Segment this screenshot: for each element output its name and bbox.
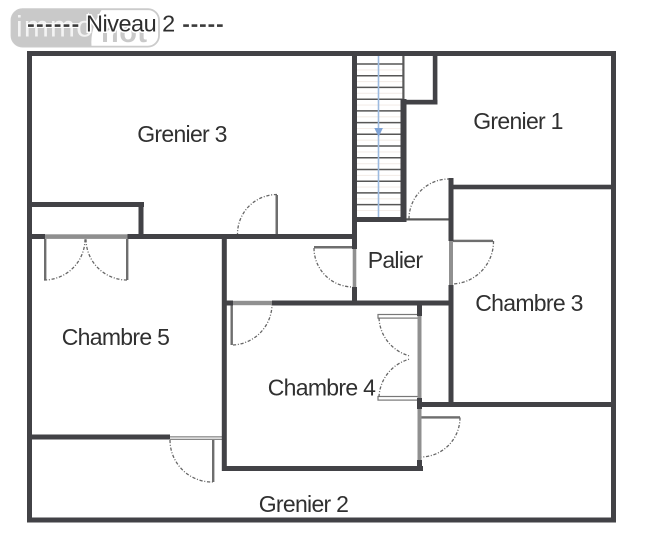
svg-text:Grenier 2: Grenier 2 — [259, 491, 349, 517]
svg-text:Chambre 4: Chambre 4 — [268, 375, 376, 401]
svg-text:Grenier 3: Grenier 3 — [137, 121, 227, 147]
svg-text:Chambre 3: Chambre 3 — [475, 290, 582, 316]
svg-text:Chambre 5: Chambre 5 — [62, 324, 169, 350]
svg-text:Grenier 1: Grenier 1 — [473, 108, 563, 134]
svg-text:Niveau 2: Niveau 2 — [86, 11, 175, 37]
svg-text:Palier: Palier — [368, 247, 424, 273]
